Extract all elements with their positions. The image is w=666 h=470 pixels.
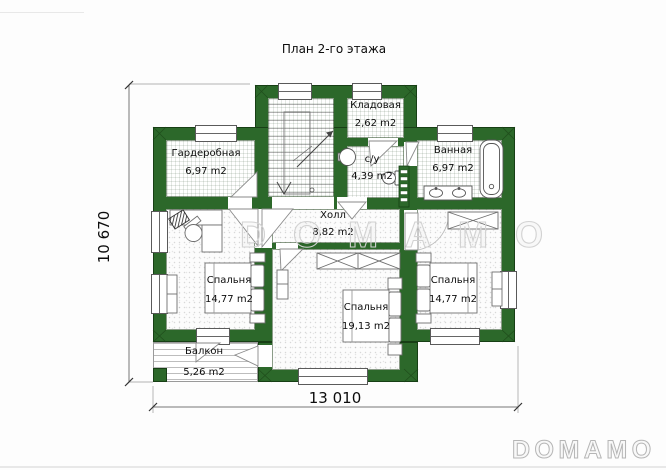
room-label-bathroom: Ванная 6,97 m2 <box>419 146 487 174</box>
window-wardrobe <box>195 125 237 142</box>
room-label-balcony: Балкон 5,26 m2 <box>168 347 240 378</box>
brand-logo: DOMAMO <box>512 436 656 465</box>
room-label-wardrobe: Гардеробная 6,97 m2 <box>168 149 244 177</box>
window-bathroom <box>437 125 473 142</box>
window-left-lower <box>151 274 168 314</box>
opening-wc-door <box>337 197 367 209</box>
room-label-storage: Кладовая 2,62 m2 <box>347 101 404 129</box>
opening-balcony-door <box>258 345 272 367</box>
window-bedroom-left-bottom <box>196 328 230 345</box>
room-label-bedroom-left: Спальня 14,77 m2 <box>204 276 254 305</box>
balcony-post <box>153 368 167 382</box>
page-title: План 2-го этажа <box>266 42 402 56</box>
window-bedroom-middle-bottom <box>298 368 368 385</box>
floor-plan-canvas: План 2-го этажа <box>0 0 666 470</box>
watermark-text: DOMAMO <box>240 214 570 256</box>
room-label-wc: с/у 4,39 m2 <box>349 155 395 182</box>
top-edge-line <box>0 12 84 13</box>
room-label-bedroom-middle: Спальня 19,13 m2 <box>342 303 390 332</box>
opening-storage-door <box>368 138 398 146</box>
opening-wardrobe-door <box>228 197 252 209</box>
bottom-edge-line <box>0 466 666 468</box>
opening-bathroom-door <box>404 142 417 166</box>
room-label-bedroom-right: Спальня 14,77 m2 <box>428 276 478 305</box>
window-top-stair <box>278 83 312 100</box>
window-right <box>500 271 517 309</box>
window-left-upper <box>151 211 168 253</box>
window-top-storage <box>352 83 382 100</box>
opening-stair-hall <box>272 197 334 209</box>
stair-treads <box>268 104 334 196</box>
dimension-width: 13 010 <box>302 389 368 407</box>
dimension-height: 10 670 <box>95 205 113 269</box>
window-bedroom-right-bottom <box>430 328 480 345</box>
